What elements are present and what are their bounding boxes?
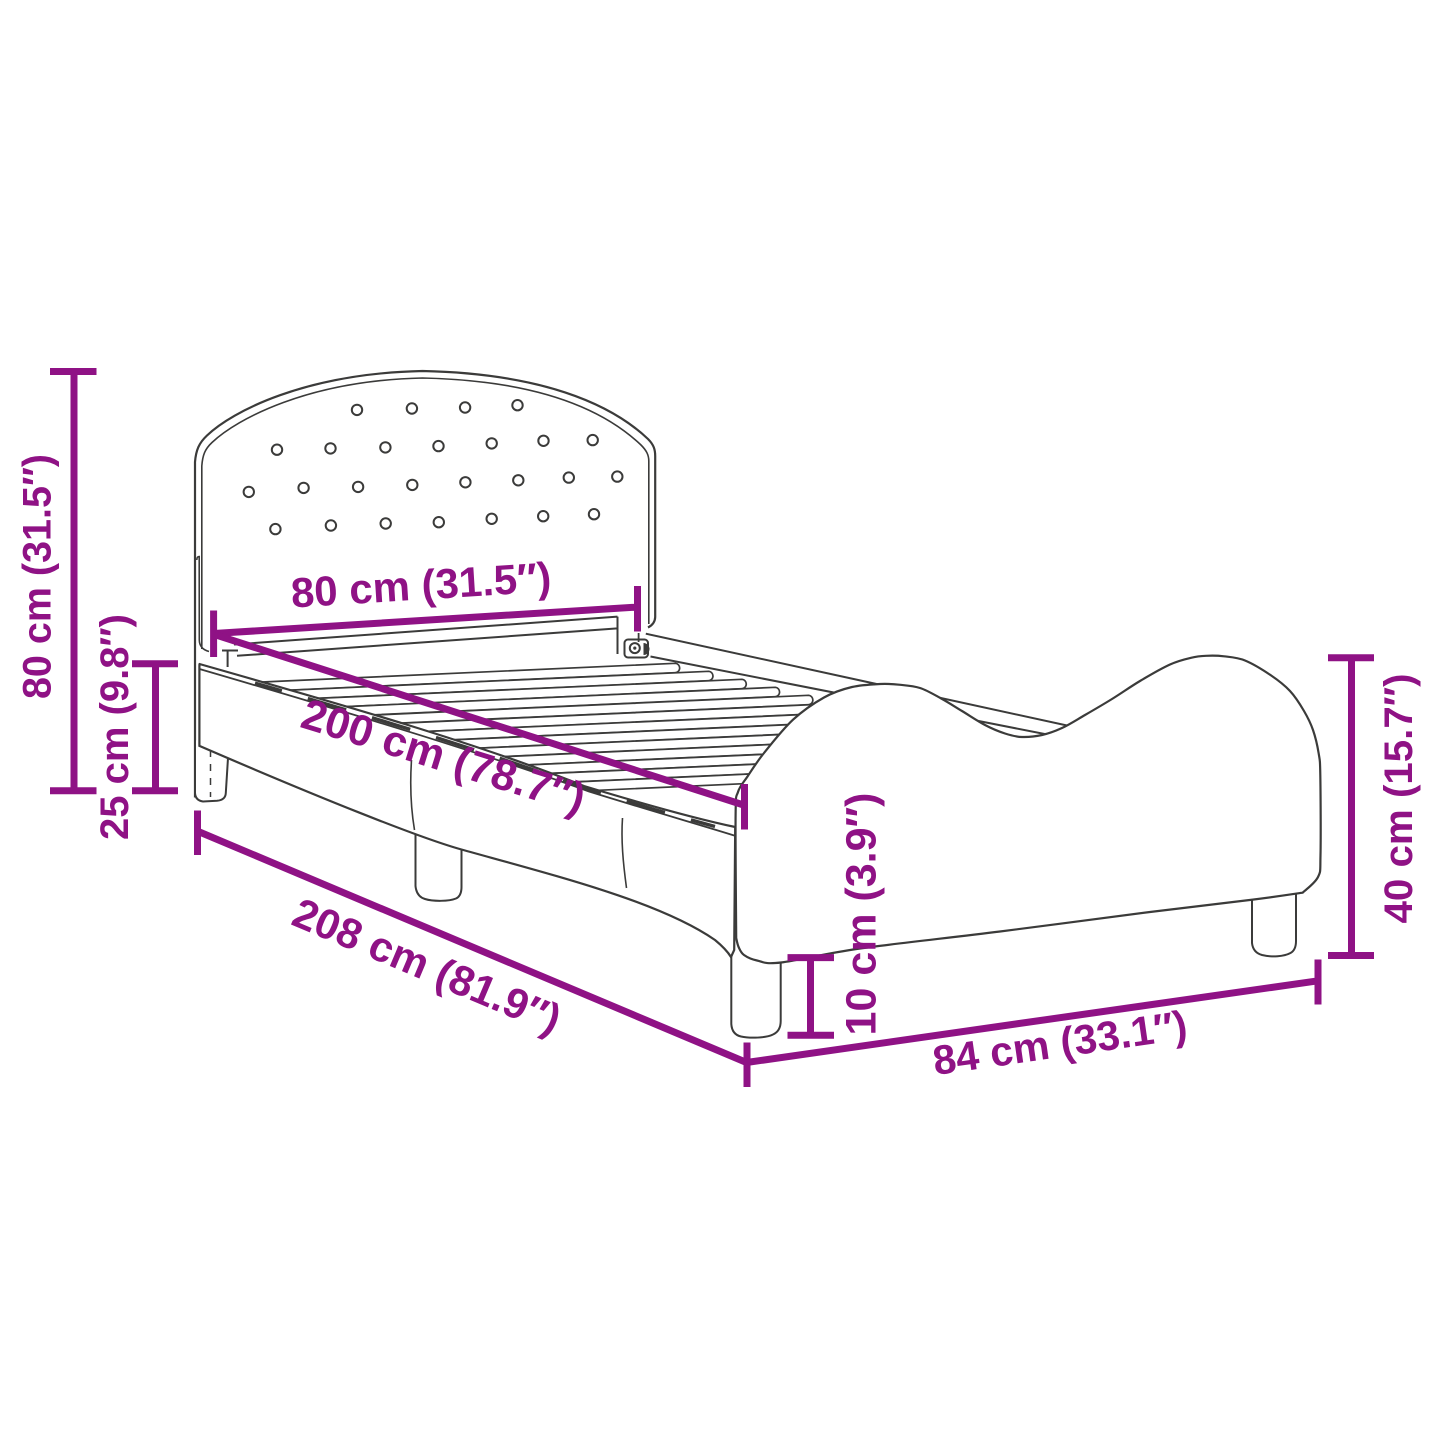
svg-text:25 cm (9.8″): 25 cm (9.8″) [93, 614, 137, 840]
svg-text:40 cm (15.7″): 40 cm (15.7″) [1376, 673, 1421, 923]
svg-text:80 cm (31.5″): 80 cm (31.5″) [16, 454, 60, 699]
svg-text:10 cm (3.9″): 10 cm (3.9″) [838, 793, 886, 1036]
